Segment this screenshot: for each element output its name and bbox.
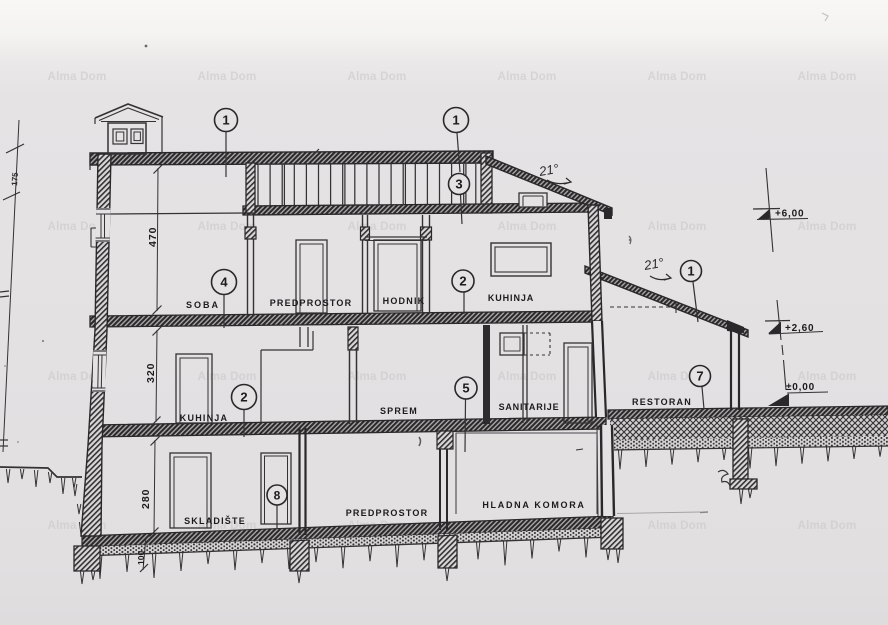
svg-text:470: 470: [147, 226, 159, 247]
svg-text:±0,00: ±0,00: [786, 382, 815, 393]
svg-text:HODNIK: HODNIK: [383, 296, 426, 306]
svg-text:KUHINJA: KUHINJA: [180, 413, 228, 423]
svg-text:+2,60: +2,60: [785, 323, 814, 334]
svg-text:Alma Dom: Alma Dom: [198, 370, 257, 383]
svg-text:Alma Dom: Alma Dom: [648, 519, 707, 532]
svg-text:PREDPROSTOR: PREDPROSTOR: [270, 298, 353, 308]
svg-text:HLADNA KOMORA: HLADNA KOMORA: [482, 500, 585, 510]
svg-text:100: 100: [136, 551, 146, 565]
svg-text:5: 5: [462, 381, 469, 396]
svg-text:Alma Dom: Alma Dom: [798, 519, 857, 532]
svg-text:SPREM: SPREM: [380, 406, 418, 416]
svg-text:+6,00: +6,00: [775, 209, 804, 220]
svg-text:Alma Dom: Alma Dom: [348, 220, 407, 233]
svg-text:7: 7: [696, 369, 703, 384]
svg-text:RESTORAN: RESTORAN: [632, 397, 692, 407]
svg-text:2: 2: [459, 274, 466, 289]
svg-text:Alma Dom: Alma Dom: [498, 70, 557, 83]
svg-text:Alma Dom: Alma Dom: [48, 70, 107, 83]
svg-text:320: 320: [145, 362, 157, 383]
svg-text:Alma Dom: Alma Dom: [648, 70, 707, 83]
svg-text:2: 2: [240, 390, 247, 405]
svg-text:SOBA: SOBA: [186, 300, 220, 310]
svg-text:Alma Dom: Alma Dom: [348, 70, 407, 83]
svg-text:3: 3: [455, 177, 462, 192]
svg-text:4: 4: [220, 275, 228, 290]
svg-text:PREDPROSTOR: PREDPROSTOR: [346, 508, 429, 518]
svg-text:Alma Dom: Alma Dom: [198, 70, 257, 83]
svg-text:1: 1: [452, 113, 459, 128]
svg-text:KUHINJA: KUHINJA: [488, 293, 534, 303]
svg-text:1: 1: [687, 264, 694, 279]
svg-text:Alma Dom: Alma Dom: [498, 220, 557, 233]
svg-text:8: 8: [274, 488, 281, 502]
svg-text:Alma Dom: Alma Dom: [798, 220, 857, 233]
svg-text:SANITARIJE: SANITARIJE: [499, 402, 560, 412]
svg-text:SKLADIŠTE: SKLADIŠTE: [184, 515, 246, 526]
svg-text:280: 280: [140, 488, 152, 509]
svg-text:1: 1: [222, 113, 229, 128]
svg-text:Alma Dom: Alma Dom: [798, 70, 857, 83]
svg-text:175: 175: [10, 172, 20, 186]
svg-text:Alma Dom: Alma Dom: [648, 220, 707, 233]
